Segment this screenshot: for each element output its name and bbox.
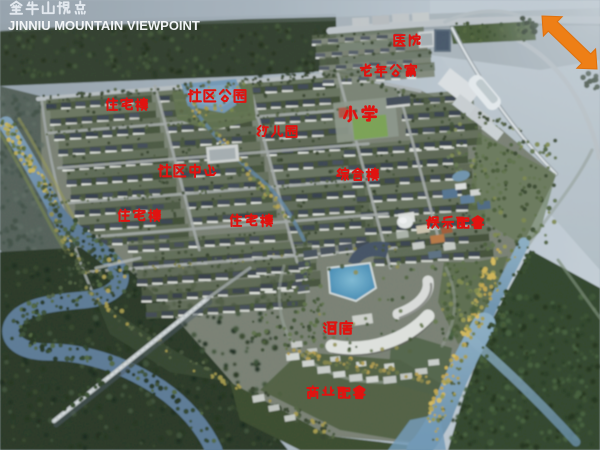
svg-text:JINNIU MOUNTAIN VIEWPOINT: JINNIU MOUNTAIN VIEWPOINT: [8, 18, 200, 33]
